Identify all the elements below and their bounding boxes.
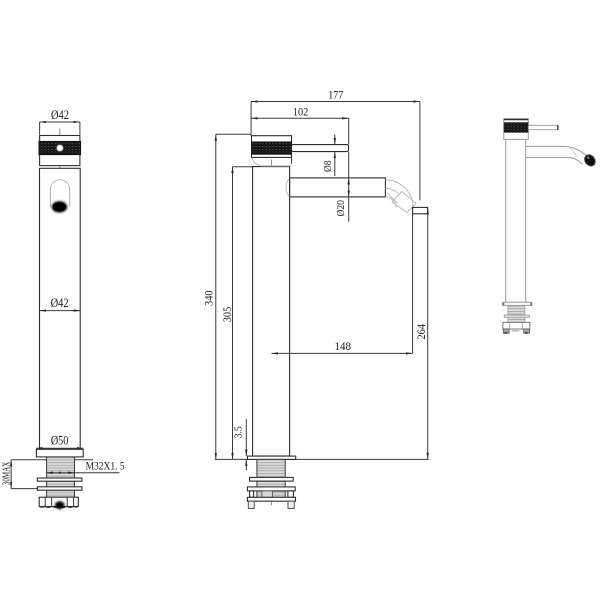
svg-text:Ø20: Ø20 (336, 200, 347, 217)
svg-text:305: 305 (220, 307, 234, 323)
svg-text:3.5: 3.5 (232, 426, 244, 438)
svg-text:Ø42: Ø42 (51, 108, 69, 122)
svg-text:264: 264 (414, 324, 428, 340)
svg-text:Ø42: Ø42 (51, 296, 69, 310)
svg-text:M32X1. 5: M32X1. 5 (86, 461, 125, 473)
svg-text:Ø8: Ø8 (323, 160, 334, 172)
svg-text:102: 102 (293, 105, 309, 119)
svg-text:340: 340 (202, 290, 216, 306)
svg-text:148: 148 (334, 339, 351, 353)
svg-text:177: 177 (328, 87, 343, 101)
svg-text:Ø50: Ø50 (51, 434, 69, 448)
